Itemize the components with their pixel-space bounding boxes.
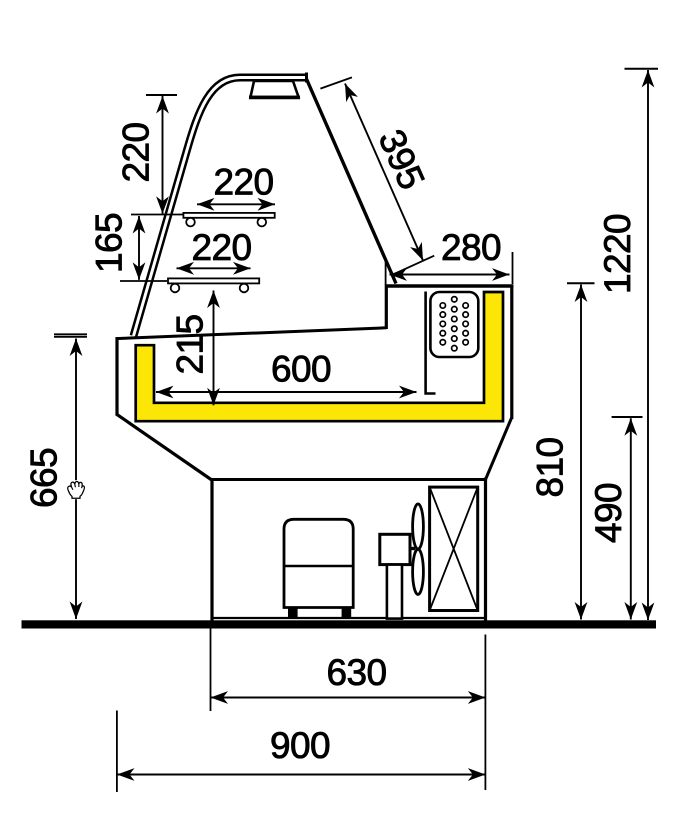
svg-text:900: 900 [270, 725, 330, 766]
svg-text:600: 600 [271, 349, 331, 390]
svg-text:220: 220 [116, 123, 157, 183]
svg-text:490: 490 [588, 483, 629, 543]
svg-text:810: 810 [530, 438, 571, 498]
svg-text:280: 280 [441, 227, 501, 268]
svg-text:665: 665 [24, 448, 65, 508]
svg-text:220: 220 [192, 227, 252, 268]
svg-text:220: 220 [214, 162, 274, 203]
svg-text:215: 215 [170, 315, 211, 375]
svg-text:630: 630 [327, 652, 387, 693]
svg-text:165: 165 [89, 213, 130, 273]
svg-text:1220: 1220 [597, 214, 638, 294]
